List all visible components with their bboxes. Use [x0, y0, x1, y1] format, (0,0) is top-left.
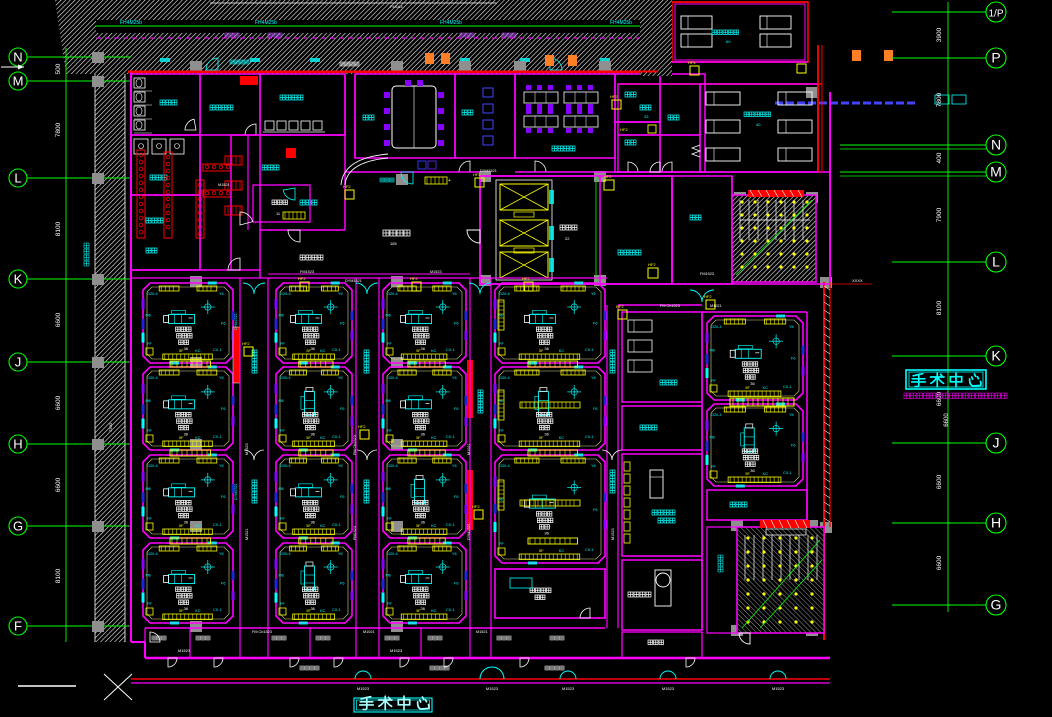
svg-text:PF: PF	[711, 465, 717, 469]
svg-text:G20-4: G20-4	[499, 464, 510, 468]
svg-text:F6: F6	[454, 407, 458, 411]
svg-text:M1523: M1523	[430, 270, 442, 274]
svg-text:HF2: HF2	[343, 184, 351, 189]
svg-text:M6: M6	[710, 435, 715, 439]
svg-text:DYM1521: DYM1521	[234, 313, 238, 330]
svg-text:400: 400	[936, 152, 943, 163]
svg-text:G20-4: G20-4	[499, 292, 510, 296]
svg-text:Y6: Y6	[219, 292, 224, 296]
svg-text:PF: PF	[280, 342, 286, 346]
svg-text:5F: 5F	[179, 524, 184, 528]
svg-text:6600: 6600	[936, 474, 943, 489]
svg-text:FM Cb1523: FM Cb1523	[353, 435, 357, 455]
svg-text:M1523: M1523	[390, 648, 403, 653]
svg-text:M1523: M1523	[662, 686, 675, 691]
svg-text:5F: 5F	[179, 349, 184, 353]
svg-text:6600: 6600	[936, 555, 943, 570]
svg-text:CX-1: CX-1	[213, 523, 222, 527]
svg-text:M6: M6	[279, 399, 284, 403]
svg-text:G20-4: G20-4	[147, 292, 158, 296]
svg-text:G: G	[13, 519, 23, 534]
svg-text:DYM1521: DYM1521	[480, 169, 497, 173]
svg-text:KC: KC	[559, 436, 565, 440]
svg-text:36: 36	[310, 606, 315, 611]
svg-text:5F: 5F	[416, 436, 421, 440]
svg-text:5F: 5F	[416, 524, 421, 528]
svg-text:36: 36	[750, 381, 755, 386]
svg-text:M1521: M1521	[245, 528, 249, 540]
svg-text:PF: PF	[280, 602, 286, 606]
svg-text:HF2: HF2	[616, 304, 624, 309]
svg-text:CX-1: CX-1	[332, 435, 341, 439]
svg-text:H: H	[13, 437, 22, 452]
svg-text:M1523: M1523	[486, 686, 499, 691]
svg-text:5F: 5F	[416, 349, 421, 353]
svg-text:FM1523: FM1523	[700, 272, 714, 276]
svg-text:KC: KC	[431, 349, 437, 353]
svg-text:36: 36	[184, 346, 189, 351]
svg-text:CX-1: CX-1	[783, 471, 792, 475]
svg-text:J: J	[993, 435, 1000, 451]
svg-text:FM163: FM163	[390, 4, 403, 9]
svg-text:M6: M6	[146, 314, 151, 318]
svg-text:Y6: Y6	[338, 552, 343, 556]
svg-text:HF2: HF2	[620, 127, 628, 132]
svg-text:7200: 7200	[108, 422, 113, 432]
svg-text:M1521: M1521	[476, 630, 488, 634]
svg-text:KC: KC	[195, 524, 201, 528]
svg-text:33: 33	[644, 114, 649, 119]
svg-text:M1021: M1021	[363, 630, 375, 634]
svg-text:CX-1: CX-1	[585, 548, 594, 552]
svg-text:XXXX: XXXX	[852, 278, 863, 283]
svg-text:KC: KC	[431, 524, 437, 528]
svg-text:Y6: Y6	[452, 376, 457, 380]
svg-text:PF: PF	[147, 429, 153, 433]
svg-text:FH4M25b: FH4M25b	[120, 20, 142, 26]
svg-text:L: L	[14, 171, 21, 186]
svg-text:5F: 5F	[539, 349, 544, 353]
svg-text:HF2: HF2	[704, 294, 712, 299]
svg-text:HF2: HF2	[298, 276, 306, 281]
svg-text:M: M	[13, 74, 24, 89]
svg-text:CX-1: CX-1	[332, 348, 341, 352]
svg-text:KC: KC	[195, 349, 201, 353]
svg-text:M: M	[990, 164, 1002, 180]
svg-text:G20-4: G20-4	[711, 413, 722, 417]
svg-text:M1021: M1021	[710, 304, 722, 308]
svg-text:6600: 6600	[55, 477, 62, 492]
svg-text:1/P: 1/P	[988, 9, 1003, 20]
svg-text:PF: PF	[387, 429, 393, 433]
svg-text:G20-4: G20-4	[280, 464, 291, 468]
svg-text:M1521: M1521	[218, 183, 230, 187]
svg-text:Y6: Y6	[338, 376, 343, 380]
svg-text:FM Cb1523: FM Cb1523	[660, 304, 680, 308]
svg-text:500: 500	[55, 63, 62, 74]
svg-text:CX-1: CX-1	[332, 608, 341, 612]
svg-text:5F: 5F	[306, 436, 311, 440]
svg-text:7900: 7900	[936, 207, 943, 222]
svg-text:F6: F6	[454, 322, 458, 326]
svg-text:36: 36	[184, 606, 189, 611]
svg-text:M1523: M1523	[178, 648, 191, 653]
svg-text:F6: F6	[340, 407, 344, 411]
svg-text:F6: F6	[340, 495, 344, 499]
svg-text:36: 36	[544, 346, 549, 351]
svg-text:Y6: Y6	[591, 464, 596, 468]
svg-text:22: 22	[565, 236, 570, 241]
svg-text:Y6: Y6	[591, 376, 596, 380]
svg-text:KC: KC	[320, 436, 326, 440]
svg-text:DYM1521: DYM1521	[467, 523, 471, 540]
svg-text:CX-1: CX-1	[213, 608, 222, 612]
svg-text:5F: 5F	[306, 524, 311, 528]
svg-text:Y6: Y6	[789, 413, 794, 417]
svg-text:F6: F6	[454, 582, 458, 586]
svg-text:M1523: M1523	[357, 686, 370, 691]
svg-text:KC: KC	[320, 609, 326, 613]
svg-text:KC: KC	[559, 549, 565, 553]
svg-text:KC: KC	[320, 524, 326, 528]
svg-text:CX-1: CX-1	[446, 523, 455, 527]
svg-text:G20-4: G20-4	[280, 292, 291, 296]
svg-text:HF2: HF2	[242, 341, 250, 346]
svg-text:M6: M6	[146, 399, 151, 403]
svg-text:HF2: HF2	[648, 262, 656, 267]
svg-text:G20-4: G20-4	[280, 552, 291, 556]
svg-text:PF: PF	[147, 602, 153, 606]
svg-text:P: P	[991, 50, 1000, 66]
svg-text:HF2: HF2	[358, 424, 366, 429]
svg-text:F6: F6	[791, 357, 795, 361]
svg-text:M6: M6	[386, 314, 391, 318]
svg-text:F6: F6	[593, 407, 597, 411]
svg-text:CX-1: CX-1	[446, 348, 455, 352]
svg-text:N: N	[991, 137, 1001, 153]
svg-text:G20-4: G20-4	[280, 376, 291, 380]
svg-text:CX-1: CX-1	[585, 348, 594, 352]
svg-text:36: 36	[750, 468, 755, 473]
svg-text:KC: KC	[763, 472, 769, 476]
svg-text:PF: PF	[387, 342, 393, 346]
svg-text:F: F	[14, 619, 22, 634]
svg-text:8100: 8100	[55, 568, 62, 583]
svg-text:M6: M6	[279, 314, 284, 318]
svg-text:M6: M6	[386, 574, 391, 578]
svg-text:5F: 5F	[745, 472, 750, 476]
svg-text:5F: 5F	[539, 549, 544, 553]
svg-text:PF: PF	[387, 517, 393, 521]
svg-text:8100: 8100	[55, 221, 62, 236]
svg-text:36: 36	[544, 431, 549, 436]
svg-text:5F: 5F	[179, 609, 184, 613]
svg-text:Y6: Y6	[452, 552, 457, 556]
svg-text:HF4: HF4	[688, 60, 696, 65]
svg-text:36: 36	[421, 431, 426, 436]
svg-text:M6: M6	[386, 399, 391, 403]
svg-text:PF: PF	[499, 429, 505, 433]
svg-text:5F: 5F	[306, 609, 311, 613]
svg-text:G20-4: G20-4	[499, 376, 510, 380]
svg-text:PF: PF	[499, 342, 505, 346]
svg-text:36: 36	[310, 519, 315, 524]
svg-text:+: +	[448, 178, 451, 184]
svg-text:36: 36	[421, 606, 426, 611]
svg-text:36: 36	[184, 431, 189, 436]
svg-text:H: H	[991, 515, 1001, 531]
svg-text:Y6: Y6	[452, 292, 457, 296]
svg-text:F6: F6	[340, 582, 344, 586]
svg-text:M1523: M1523	[245, 443, 249, 455]
svg-text:DYM1521: DYM1521	[234, 483, 238, 500]
svg-text:5F: 5F	[306, 349, 311, 353]
svg-text:165: 165	[390, 241, 397, 246]
svg-text:N: N	[13, 50, 22, 65]
svg-text:G: G	[991, 597, 1002, 613]
svg-text:5F: 5F	[539, 436, 544, 440]
svg-text:CX-1: CX-1	[213, 348, 222, 352]
svg-text:KC: KC	[559, 349, 565, 353]
svg-text:F6: F6	[593, 508, 597, 512]
svg-text:7800: 7800	[55, 122, 62, 137]
svg-text:F6: F6	[221, 322, 225, 326]
svg-text:5F: 5F	[416, 609, 421, 613]
svg-text:CX-1: CX-1	[213, 435, 222, 439]
svg-text:G20-4: G20-4	[387, 552, 398, 556]
svg-text:FH4M25b: FH4M25b	[610, 20, 632, 26]
svg-text:M6: M6	[279, 574, 284, 578]
svg-text:CX-1: CX-1	[446, 435, 455, 439]
svg-text:7800: 7800	[936, 92, 943, 107]
svg-text:Y6: Y6	[789, 325, 794, 329]
svg-text:M6: M6	[146, 487, 151, 491]
svg-text:60: 60	[726, 39, 731, 44]
svg-text:F6: F6	[221, 407, 225, 411]
svg-text:Y6: Y6	[452, 464, 457, 468]
svg-text:FH4M25b: FH4M25b	[255, 20, 277, 26]
svg-text:FH4M25b: FH4M25b	[440, 20, 462, 26]
svg-text:M6: M6	[710, 348, 715, 352]
svg-text:M6: M6	[146, 574, 151, 578]
svg-text:PF: PF	[280, 429, 286, 433]
svg-text:HF2: HF2	[522, 276, 530, 281]
svg-text:36: 36	[421, 519, 426, 524]
svg-text:6600: 6600	[55, 312, 62, 327]
svg-text:M1523: M1523	[611, 528, 615, 540]
svg-text:CX-1: CX-1	[783, 385, 792, 389]
svg-text:FM1523: FM1523	[300, 270, 314, 274]
svg-text:M1523: M1523	[562, 686, 575, 691]
svg-text:G20-4: G20-4	[387, 376, 398, 380]
svg-text:Y6: Y6	[219, 552, 224, 556]
svg-text:G20-4: G20-4	[387, 292, 398, 296]
svg-text:KC: KC	[431, 609, 437, 613]
svg-text:FM Cb1523: FM Cb1523	[252, 630, 272, 634]
svg-text:CX-1: CX-1	[332, 523, 341, 527]
svg-text:M1021: M1021	[467, 443, 471, 455]
svg-text:KC: KC	[320, 349, 326, 353]
svg-text:PF: PF	[711, 379, 717, 383]
svg-text:36: 36	[310, 431, 315, 436]
svg-text:G20-4: G20-4	[147, 464, 158, 468]
svg-text:KC: KC	[763, 386, 769, 390]
svg-text:M6: M6	[386, 487, 391, 491]
svg-text:M1523: M1523	[772, 686, 785, 691]
svg-text:KC: KC	[431, 436, 437, 440]
svg-text:F6: F6	[593, 322, 597, 326]
svg-text:40: 40	[756, 122, 761, 127]
svg-text:PF: PF	[147, 342, 153, 346]
svg-text:Y6: Y6	[591, 292, 596, 296]
svg-text:36: 36	[310, 346, 315, 351]
svg-text:Y6: Y6	[219, 464, 224, 468]
svg-text:K: K	[14, 272, 23, 287]
svg-text:HF2: HF2	[604, 174, 612, 179]
svg-text:G20-4: G20-4	[147, 552, 158, 556]
svg-text:HF2: HF2	[410, 276, 418, 281]
svg-text:KC: KC	[195, 609, 201, 613]
svg-text:K: K	[991, 348, 1001, 364]
svg-text:PF: PF	[147, 517, 153, 521]
svg-text:36: 36	[184, 519, 189, 524]
svg-text:HF2: HF2	[472, 504, 480, 509]
svg-text:PF: PF	[280, 517, 286, 521]
svg-text:L: L	[992, 254, 1000, 270]
svg-text:36: 36	[421, 346, 426, 351]
svg-text:5F: 5F	[179, 436, 184, 440]
svg-text:PF: PF	[387, 602, 393, 606]
svg-text:KC: KC	[195, 436, 201, 440]
svg-text:F6: F6	[221, 582, 225, 586]
svg-text:FM1523: FM1523	[353, 526, 357, 540]
svg-text:J: J	[15, 355, 22, 370]
svg-text:PF: PF	[499, 542, 505, 546]
svg-text:F6: F6	[221, 495, 225, 499]
svg-text:M6: M6	[279, 487, 284, 491]
svg-text:Y6: Y6	[338, 464, 343, 468]
svg-text:G20-4: G20-4	[711, 325, 722, 329]
svg-text:3900: 3900	[936, 27, 943, 42]
svg-text:CX-1: CX-1	[585, 435, 594, 439]
svg-text:6600: 6600	[55, 395, 62, 410]
svg-text:6600: 6600	[944, 413, 950, 427]
svg-text:CX-1: CX-1	[446, 608, 455, 612]
svg-text:8100: 8100	[936, 300, 943, 315]
svg-text:HF2: HF2	[610, 94, 618, 99]
svg-text:F6: F6	[340, 322, 344, 326]
svg-text:DYM1521: DYM1521	[345, 279, 362, 283]
svg-text:F6: F6	[791, 444, 795, 448]
svg-text:36: 36	[544, 531, 549, 536]
svg-text:Y6: Y6	[219, 376, 224, 380]
svg-text:Y6: Y6	[338, 292, 343, 296]
svg-text:G20-4: G20-4	[147, 376, 158, 380]
svg-text:F6: F6	[454, 495, 458, 499]
svg-text:G20-4: G20-4	[387, 464, 398, 468]
svg-text:5F: 5F	[745, 386, 750, 390]
